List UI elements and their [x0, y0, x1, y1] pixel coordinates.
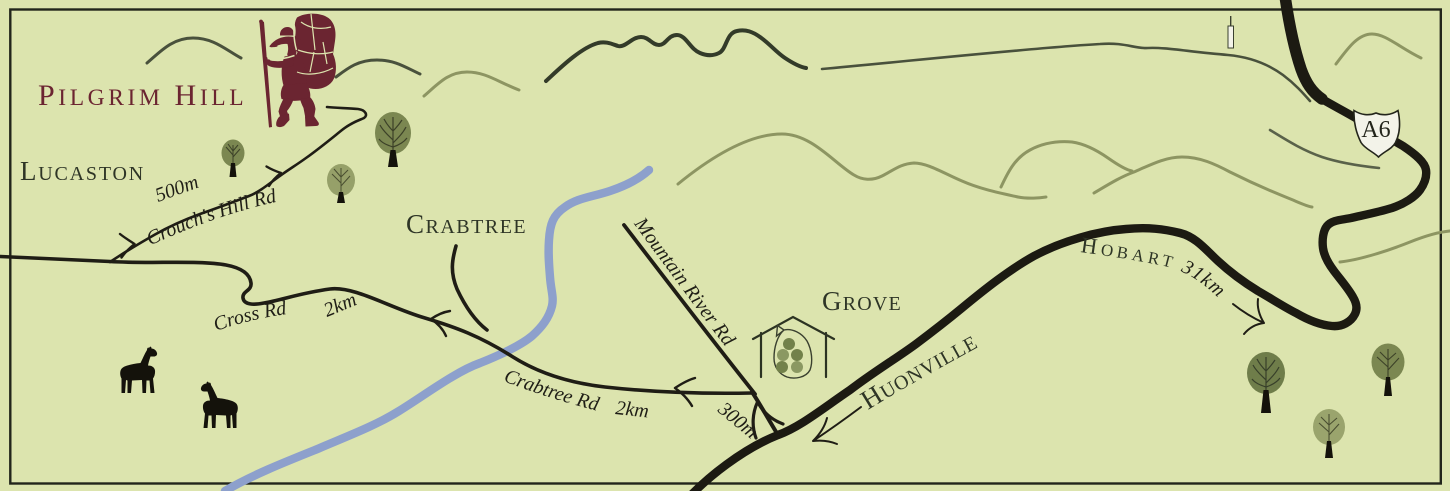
svg-text:2km: 2km: [614, 397, 649, 422]
svg-text:A6: A6: [1361, 117, 1390, 143]
